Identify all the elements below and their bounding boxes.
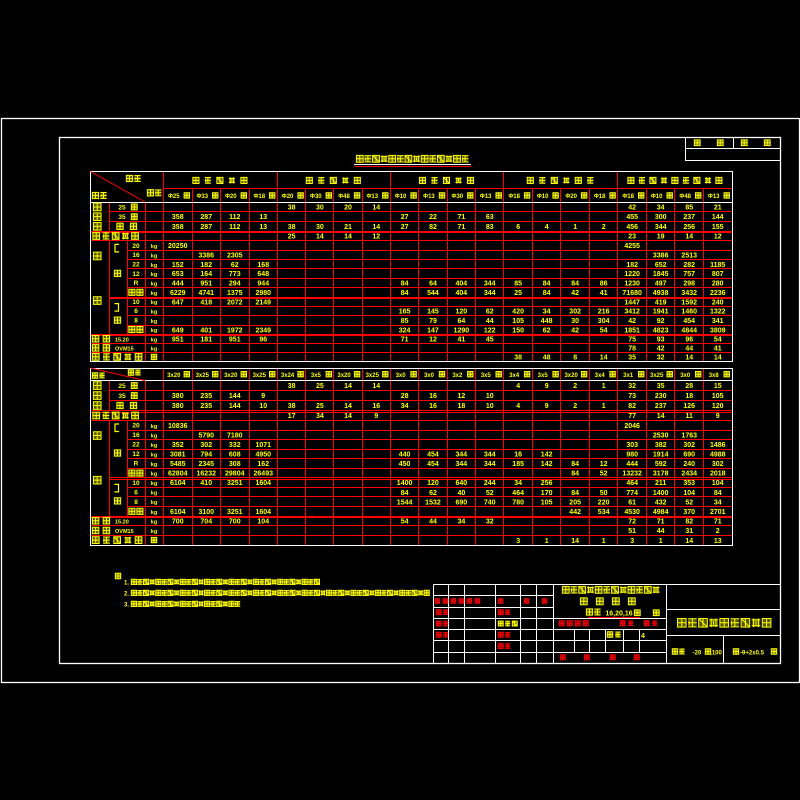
svg-text:63: 63 [486,214,494,221]
svg-text:42: 42 [657,346,665,353]
svg-text:kg: kg [151,300,157,306]
svg-text:649: 649 [172,327,184,334]
svg-text:401: 401 [200,327,212,334]
svg-text:38: 38 [288,403,296,410]
svg-text:Φ13: Φ13 [423,194,435,200]
svg-text:653: 653 [172,271,184,278]
svg-text:kg: kg [151,519,157,525]
svg-text:302: 302 [712,461,724,468]
svg-text:14: 14 [372,204,380,211]
svg-text:11: 11 [686,413,694,420]
svg-text:71: 71 [714,518,722,525]
svg-text:3: 3 [630,538,634,545]
svg-text:418: 418 [200,299,212,306]
svg-text:92: 92 [657,318,665,325]
svg-text:244: 244 [484,480,496,487]
svg-text:Φ18: Φ18 [253,194,265,200]
svg-text:534: 534 [598,509,610,516]
svg-text:105: 105 [512,318,524,325]
svg-text:332: 332 [229,442,241,449]
svg-text:104: 104 [683,490,695,497]
svg-text:164: 164 [200,271,212,278]
svg-text:2149: 2149 [255,299,271,306]
svg-text:38: 38 [288,383,296,390]
svg-text:4950: 4950 [255,452,271,459]
svg-text:86: 86 [600,281,608,288]
svg-text:23: 23 [628,234,636,241]
svg-text:2: 2 [573,383,577,390]
svg-text:2513: 2513 [681,253,697,260]
svg-text:kg: kg [151,510,157,516]
svg-text:kg: kg [151,433,157,439]
svg-text:308: 308 [229,461,241,468]
svg-text:34: 34 [714,499,722,506]
svg-text:211: 211 [655,480,666,487]
svg-text:344: 344 [484,452,496,459]
svg-text:22: 22 [429,214,437,221]
svg-text:10: 10 [132,299,140,306]
svg-text:Φ48: Φ48 [679,194,691,200]
svg-text:182: 182 [626,262,638,269]
svg-text:3x0: 3x0 [424,373,435,379]
svg-text:1845: 1845 [653,271,669,278]
svg-text:145: 145 [427,309,439,316]
svg-text:15.20: 15.20 [115,337,129,343]
svg-text:12: 12 [457,393,465,400]
svg-text:448: 448 [541,318,553,325]
svg-text:302: 302 [569,309,581,316]
svg-text:112: 112 [229,214,240,221]
svg-text:kg: kg [151,443,157,449]
svg-text:6: 6 [134,308,138,315]
svg-text:73: 73 [628,393,636,400]
svg-text:3x20: 3x20 [224,373,238,379]
svg-text:12: 12 [429,336,437,343]
svg-text:4844: 4844 [681,327,697,334]
svg-text:3x4: 3x4 [595,373,606,379]
svg-text:4988: 4988 [710,452,726,459]
svg-text:3x5: 3x5 [481,373,492,379]
svg-text:10: 10 [486,403,494,410]
svg-text:14: 14 [685,538,693,545]
svg-text:34: 34 [316,413,324,420]
svg-text:2: 2 [573,403,577,410]
svg-text:3x5: 3x5 [538,373,549,379]
svg-text:78: 78 [628,346,636,353]
svg-text:302: 302 [683,442,695,449]
svg-text:34: 34 [457,518,465,525]
svg-text:16: 16 [429,393,437,400]
svg-text:4: 4 [516,403,520,410]
svg-text:185: 185 [512,461,524,468]
svg-text:28: 28 [685,383,693,390]
svg-text:27: 27 [401,214,409,221]
svg-text:3.: 3. [124,603,129,609]
svg-text:951: 951 [172,336,184,343]
svg-text:442: 442 [569,509,581,516]
svg-text:52: 52 [685,499,693,506]
svg-text:61: 61 [628,499,636,506]
svg-text:3x4: 3x4 [509,373,520,379]
svg-text:kg: kg [151,529,157,535]
svg-text:16232: 16232 [197,471,217,478]
svg-text:358: 358 [172,224,184,231]
svg-text:450: 450 [399,461,411,468]
svg-text:14: 14 [344,383,352,390]
svg-text:168: 168 [257,262,269,269]
svg-text:84: 84 [543,290,551,297]
svg-text:84: 84 [714,490,722,497]
svg-text:1763: 1763 [681,432,697,439]
svg-text:12: 12 [132,271,140,278]
svg-text:3x5: 3x5 [311,373,322,379]
svg-text:3x25: 3x25 [366,373,380,379]
svg-text:1592: 1592 [681,299,697,306]
svg-text:774: 774 [626,490,638,497]
svg-text:690: 690 [683,452,695,459]
svg-text:40: 40 [457,490,465,497]
svg-text:84: 84 [543,281,551,288]
svg-text:Φ13: Φ13 [366,194,378,200]
svg-text:700: 700 [172,518,184,525]
svg-text:Φ18: Φ18 [622,194,634,200]
svg-text:3386: 3386 [198,253,214,260]
svg-text:16: 16 [429,403,437,410]
svg-text:300: 300 [655,214,667,221]
svg-text:794: 794 [200,452,212,459]
svg-text:1: 1 [602,403,606,410]
svg-text:444: 444 [626,461,638,468]
svg-text:84: 84 [571,281,579,288]
svg-text:9: 9 [716,413,720,420]
svg-text:303: 303 [626,442,638,449]
svg-text:4255: 4255 [624,243,640,250]
svg-text:kg: kg [151,346,157,352]
svg-text:410: 410 [200,480,212,487]
svg-text:3x25: 3x25 [650,373,664,379]
svg-text:13: 13 [714,538,722,545]
svg-text:77: 77 [628,413,636,420]
svg-text:544: 544 [427,290,439,297]
svg-text:29804: 29804 [225,471,245,478]
svg-text:1604: 1604 [255,509,271,516]
svg-text:27: 27 [401,224,409,231]
svg-text:152: 152 [172,262,184,269]
svg-text:-9+2x0.5: -9+2x0.5 [740,651,765,657]
svg-text:kg: kg [151,244,157,250]
svg-text:380: 380 [172,403,184,410]
svg-text:85: 85 [401,318,409,325]
svg-text:72: 72 [628,518,636,525]
svg-text:3412: 3412 [624,309,640,316]
svg-text:71: 71 [457,214,465,221]
svg-text:50: 50 [600,490,608,497]
svg-text:34: 34 [657,204,665,211]
svg-text:13: 13 [259,214,267,221]
svg-text:4: 4 [516,383,520,390]
svg-text:122: 122 [484,327,496,334]
svg-text:6104: 6104 [170,509,186,516]
svg-text:-20: -20 [693,651,702,657]
svg-text:34: 34 [543,309,551,316]
svg-text:3251: 3251 [227,480,243,487]
svg-text:93: 93 [657,336,665,343]
svg-text:64: 64 [429,281,437,288]
svg-text:kg: kg [151,291,157,297]
svg-text:344: 344 [484,461,496,468]
svg-text:690: 690 [455,499,467,506]
svg-text:647: 647 [172,299,184,306]
svg-text:344: 344 [655,224,667,231]
svg-text:105: 105 [712,393,724,400]
svg-text:20250: 20250 [168,243,188,250]
svg-text:1290: 1290 [454,327,470,334]
svg-text:3: 3 [516,538,520,545]
svg-text:2072: 2072 [227,299,243,306]
svg-text:235: 235 [200,393,212,400]
svg-text:44: 44 [685,346,693,353]
svg-text:3x20: 3x20 [167,373,181,379]
svg-text:42: 42 [628,204,636,211]
svg-text:3178: 3178 [653,471,669,478]
svg-text:8: 8 [134,499,138,506]
svg-text:1400: 1400 [653,490,669,497]
svg-text:83: 83 [486,224,494,231]
svg-text:21: 21 [344,224,352,231]
svg-text:181: 181 [200,336,212,343]
svg-text:220: 220 [598,499,610,506]
svg-text:454: 454 [427,452,439,459]
svg-text:7180: 7180 [227,432,243,439]
svg-text:38: 38 [514,355,522,362]
svg-text:kg: kg [151,462,157,468]
svg-text:14: 14 [344,413,352,420]
svg-text:344: 344 [455,452,467,459]
svg-text:1544: 1544 [397,499,413,506]
svg-text:6229: 6229 [170,290,186,297]
svg-text:2: 2 [602,224,606,231]
svg-text:3x24: 3x24 [281,373,295,379]
svg-text:18: 18 [685,393,693,400]
svg-text:32: 32 [628,383,636,390]
svg-text:298: 298 [683,281,695,288]
svg-text:144: 144 [712,214,724,221]
svg-text:42: 42 [571,290,579,297]
svg-text:19: 19 [657,234,665,241]
svg-text:62804: 62804 [168,471,188,478]
svg-text:2018: 2018 [710,471,726,478]
svg-text:464: 464 [626,480,638,487]
svg-text:18: 18 [457,403,465,410]
svg-text:104: 104 [257,518,269,525]
svg-text:10: 10 [132,480,140,487]
svg-text:96: 96 [259,336,267,343]
svg-text:120: 120 [712,403,724,410]
svg-text:3081: 3081 [170,452,186,459]
svg-text:42: 42 [571,327,579,334]
svg-text:142: 142 [541,452,553,459]
svg-text:22: 22 [132,442,140,449]
svg-text:155: 155 [712,224,724,231]
svg-text:3x25: 3x25 [253,373,267,379]
svg-text:1: 1 [573,224,577,231]
svg-text:104: 104 [712,480,724,487]
svg-text:12: 12 [600,461,608,468]
svg-text:3x1: 3x1 [623,373,634,379]
svg-text:R: R [134,280,139,287]
svg-text:Φ20: Φ20 [282,194,294,200]
svg-text:404: 404 [455,281,467,288]
svg-text:1: 1 [602,538,606,545]
svg-text:170: 170 [541,490,553,497]
svg-text:85: 85 [514,281,522,288]
svg-text:3809: 3809 [710,327,726,334]
svg-text:16: 16 [514,452,522,459]
svg-text:120: 120 [427,480,439,487]
svg-text:35: 35 [118,214,126,221]
svg-text:14: 14 [685,355,693,362]
svg-text:kg: kg [151,263,157,269]
svg-text:71: 71 [401,336,409,343]
svg-text:21: 21 [714,204,722,211]
svg-text:6: 6 [516,224,520,231]
svg-text:419: 419 [655,299,667,306]
svg-text:807: 807 [712,271,724,278]
svg-text:52: 52 [600,471,608,478]
svg-text:34: 34 [401,403,409,410]
svg-text:700: 700 [229,518,241,525]
svg-text:237: 237 [655,403,667,410]
svg-text:1941: 1941 [653,309,669,316]
svg-text:14: 14 [316,234,324,241]
svg-text:1071: 1071 [255,442,271,449]
svg-text:5790: 5790 [198,432,214,439]
svg-text:31: 31 [685,528,693,535]
svg-text:1220: 1220 [624,271,640,278]
svg-text:35: 35 [628,355,636,362]
svg-text:256: 256 [683,224,695,231]
svg-text:1.: 1. [124,581,129,587]
svg-text:84: 84 [571,461,579,468]
svg-text:3100: 3100 [198,509,214,516]
svg-text:464: 464 [512,490,524,497]
svg-text:25: 25 [514,290,522,297]
svg-text:kg: kg [151,319,157,325]
svg-text:17: 17 [288,413,296,420]
svg-text:3251: 3251 [227,509,243,516]
svg-text:15.20: 15.20 [115,519,129,525]
svg-text:4: 4 [545,224,549,231]
svg-text:240: 240 [683,461,695,468]
svg-text:4984: 4984 [653,509,669,516]
svg-text:Φ13: Φ13 [480,194,492,200]
svg-text:1: 1 [545,538,549,545]
svg-text:382: 382 [655,442,667,449]
svg-text:44: 44 [486,318,494,325]
svg-text:34: 34 [514,480,522,487]
svg-text:kg: kg [151,328,157,334]
svg-text:144: 144 [229,393,241,400]
svg-text:15: 15 [714,383,722,390]
svg-text:35: 35 [657,383,665,390]
svg-text:14: 14 [600,355,608,362]
svg-text:14: 14 [657,413,665,420]
svg-text:14: 14 [685,234,693,241]
svg-text:82: 82 [429,224,437,231]
svg-text:1447: 1447 [624,299,640,306]
svg-text:kg: kg [151,281,157,287]
svg-text:162: 162 [257,461,269,468]
svg-text:16,20,16: 16,20,16 [605,611,632,618]
svg-text:358: 358 [172,214,184,221]
svg-text:142: 142 [541,461,553,468]
svg-text:12: 12 [714,234,722,241]
svg-text:25: 25 [316,403,324,410]
svg-text:kg: kg [151,500,157,506]
svg-text:Φ30: Φ30 [452,194,464,200]
svg-text:14: 14 [372,224,380,231]
svg-text:Φ10: Φ10 [651,194,663,200]
svg-text:20: 20 [132,243,140,250]
svg-text:6104: 6104 [170,480,186,487]
svg-text:216: 216 [598,309,610,316]
svg-text:182: 182 [200,262,212,269]
svg-text:3x20: 3x20 [337,373,351,379]
svg-text:352: 352 [172,442,184,449]
svg-text:608: 608 [229,452,241,459]
svg-text:kg: kg [151,253,157,259]
svg-text:30: 30 [571,318,579,325]
svg-text:14: 14 [714,355,722,362]
svg-text:2046: 2046 [624,423,640,430]
svg-text:kg: kg [151,472,157,478]
svg-text:2: 2 [716,528,720,535]
svg-text:120: 120 [455,309,467,316]
svg-text:4: 4 [641,633,645,640]
svg-text:26493: 26493 [254,471,274,478]
svg-text:25: 25 [316,383,324,390]
svg-text:235: 235 [200,403,212,410]
svg-text:1460: 1460 [681,309,697,316]
svg-text:144: 144 [229,403,241,410]
svg-text:4938: 4938 [653,290,669,297]
svg-text:3x20: 3x20 [564,373,578,379]
svg-text:25: 25 [288,234,296,241]
svg-text:75: 75 [628,336,636,343]
svg-text:kg: kg [151,452,157,458]
svg-text:14: 14 [344,403,352,410]
svg-text:1185: 1185 [710,262,725,269]
svg-text:32: 32 [486,518,494,525]
svg-text:6: 6 [134,489,138,496]
svg-text:13232: 13232 [622,471,642,478]
svg-text:4823: 4823 [653,327,669,334]
svg-text:5485: 5485 [170,461,186,468]
svg-text:3x0: 3x0 [396,373,407,379]
svg-text:237: 237 [683,214,695,221]
svg-text:71: 71 [657,518,665,525]
svg-text:54: 54 [600,327,608,334]
svg-text:52: 52 [486,490,494,497]
svg-text:126: 126 [683,403,695,410]
svg-text:287: 287 [200,214,212,221]
svg-text:kg: kg [151,424,157,430]
svg-text:82: 82 [685,518,693,525]
svg-text:3x0: 3x0 [680,373,691,379]
svg-text:9: 9 [545,383,549,390]
svg-text:3x25: 3x25 [196,373,210,379]
svg-text:230: 230 [655,393,667,400]
